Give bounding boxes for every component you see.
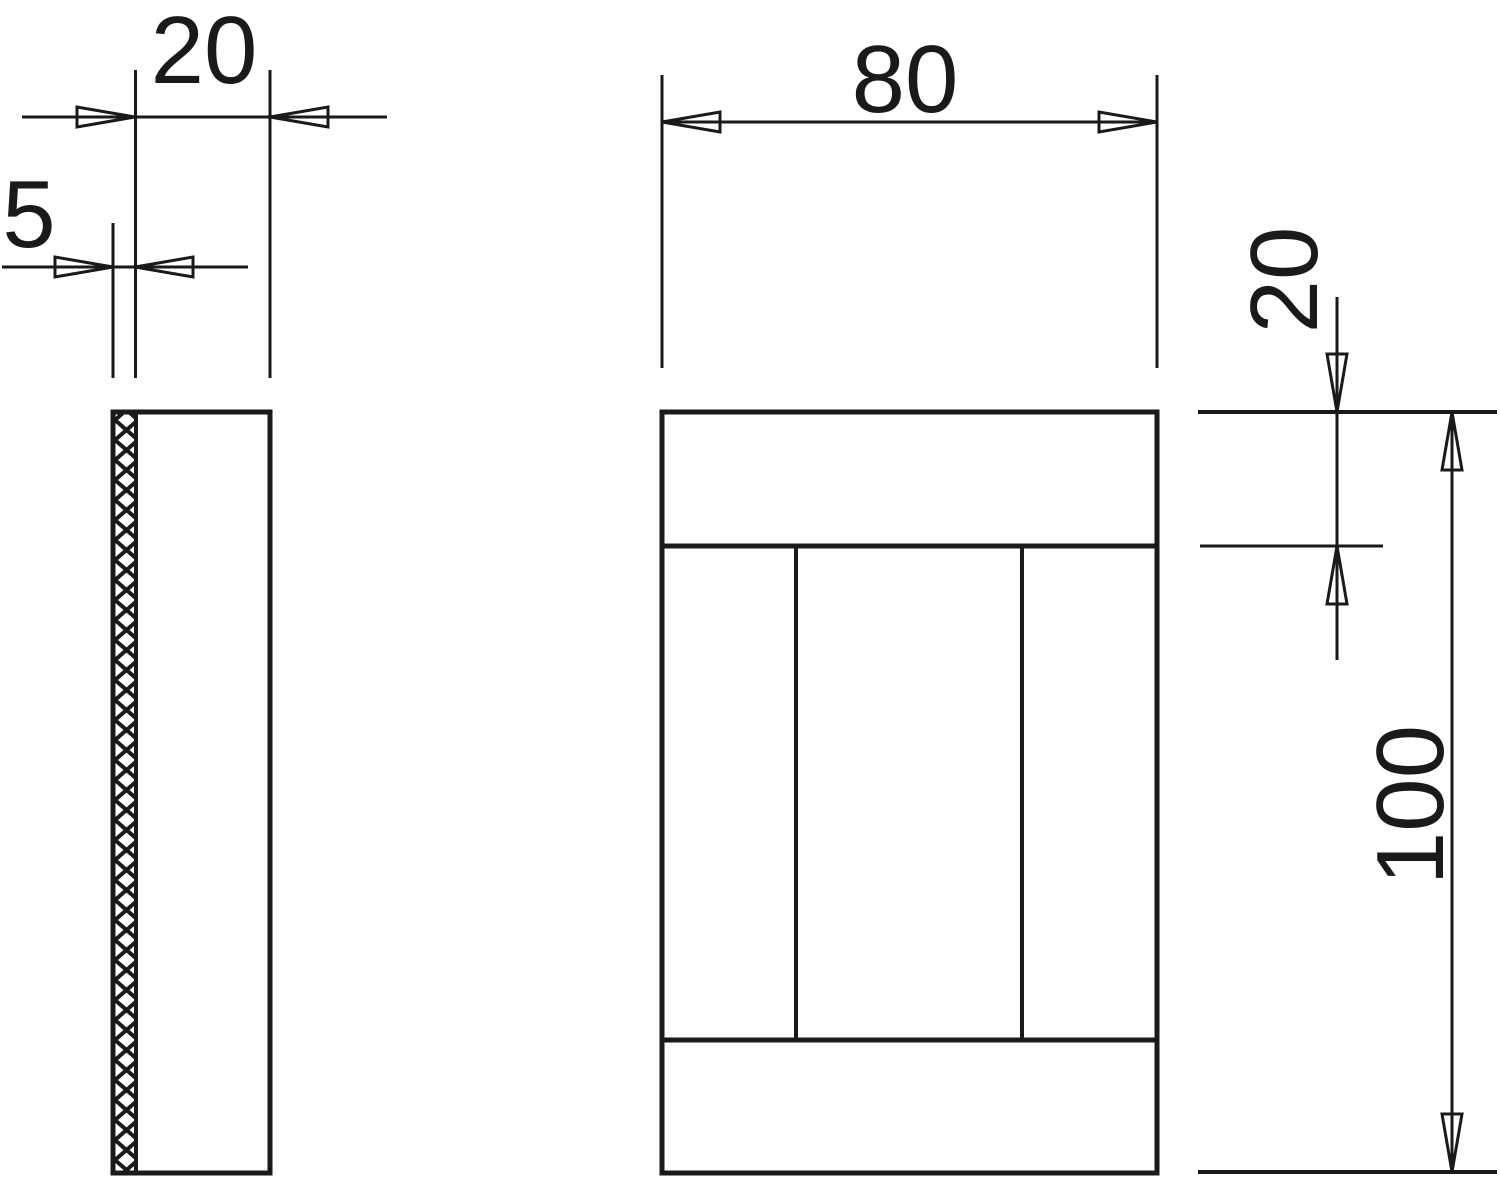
dimension-label-front-height: 100	[1357, 725, 1464, 885]
technical-drawing-page: 20 5 80 20	[0, 0, 1500, 1177]
dimension-layer-thickness: 5	[2, 161, 248, 378]
front-view-outline	[662, 412, 1157, 1173]
dimension-band-height: 20	[1231, 227, 1347, 660]
technical-drawing-canvas: 20 5 80 20	[0, 0, 1500, 1177]
dimension-label-band-height: 20	[1231, 227, 1338, 334]
dimension-label-front-width: 80	[852, 26, 959, 133]
front-view	[662, 412, 1157, 1173]
dimension-front-height: 100	[1357, 412, 1464, 1172]
dimension-front-width: 80	[662, 26, 1157, 368]
gasket-hatch-band	[113, 412, 136, 1173]
side-view	[113, 412, 270, 1173]
dimension-side-width: 20	[22, 0, 387, 378]
dimension-label-layer-thickness: 5	[2, 161, 55, 268]
dimension-label-side-width: 20	[151, 0, 258, 104]
